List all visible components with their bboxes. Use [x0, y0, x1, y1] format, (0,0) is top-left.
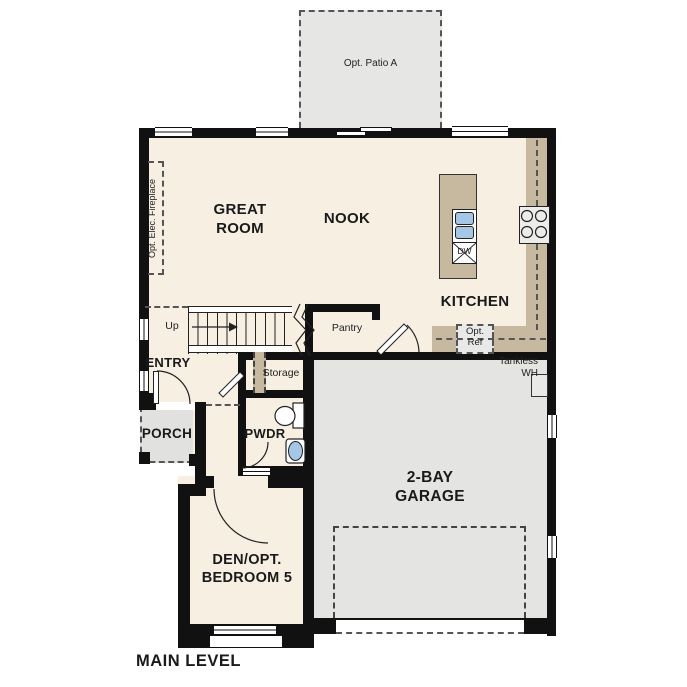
- opt-ref-label: Opt. Ref: [456, 327, 494, 349]
- wall-garage-bottom-right: [524, 618, 556, 634]
- counter-centerline-2: [536, 244, 538, 330]
- wall-den-top-left: [195, 476, 214, 488]
- wall-storage-bottom: [238, 390, 311, 398]
- entry-hall-line: [206, 404, 240, 406]
- window-garage-right-1: [547, 415, 557, 438]
- counter-centerline-1: [536, 140, 538, 206]
- powder-door-opening: [243, 467, 270, 476]
- window-top-2: [256, 127, 288, 137]
- patio-slider-right: [360, 127, 392, 132]
- entry-door-opening: [156, 402, 195, 410]
- garage-parking-outline: [333, 526, 526, 618]
- window-left-2: [139, 371, 149, 391]
- sink-basin-bottom: [455, 226, 474, 239]
- tankless-wh-label: Tankless WH: [478, 356, 538, 379]
- dishwasher-label: DW: [452, 247, 477, 257]
- sink-basin-top: [455, 212, 474, 225]
- entry-door-leaf: [153, 371, 159, 404]
- garage-label: 2-BAY GARAGE: [378, 468, 482, 507]
- window-top-1: [155, 127, 192, 137]
- nook-label: NOOK: [307, 210, 387, 229]
- wall-pantry-stub: [372, 304, 380, 320]
- kitchen-label: KITCHEN: [425, 293, 525, 312]
- cooktop-box: [519, 206, 550, 244]
- pantry-label: Pantry: [316, 322, 378, 334]
- powder-label: PWDR: [239, 426, 291, 442]
- den-label: DEN/OPT. BEDROOM 5: [183, 551, 311, 587]
- greatroom-ceiling-line: [145, 306, 188, 308]
- stairs-up-label: Up: [158, 320, 186, 332]
- entry-label: ENTRY: [142, 355, 194, 371]
- floor-plan: GREAT ROOM NOOK KITCHEN Pantry Storage E…: [0, 0, 687, 687]
- porch-post-bottomleft: [139, 452, 150, 464]
- den-window-sill: [209, 635, 283, 648]
- wall-right: [547, 128, 556, 636]
- window-den-bottom: [214, 625, 276, 635]
- wall-pantry-top: [305, 304, 380, 312]
- stairs-rail-top: [188, 306, 296, 313]
- wall-garage-bottom-left: [303, 618, 336, 634]
- patio-label: Opt. Patio A: [299, 58, 442, 70]
- garage-door-dashed-line: [336, 632, 524, 634]
- window-left-1: [139, 319, 149, 340]
- fireplace-label: Opt. Elec. Fireplace: [147, 162, 164, 274]
- porch-label: PORCH: [141, 426, 193, 443]
- window-top-3: [452, 126, 508, 137]
- storage-label: Storage: [250, 367, 312, 379]
- window-garage-right-2: [547, 536, 557, 558]
- wall-den-top-right: [268, 476, 313, 488]
- garage-door-opening: [336, 618, 524, 632]
- plan-title: MAIN LEVEL: [136, 651, 296, 672]
- porch-post-bottomright: [189, 454, 206, 466]
- great-room-label: GREAT ROOM: [190, 201, 290, 239]
